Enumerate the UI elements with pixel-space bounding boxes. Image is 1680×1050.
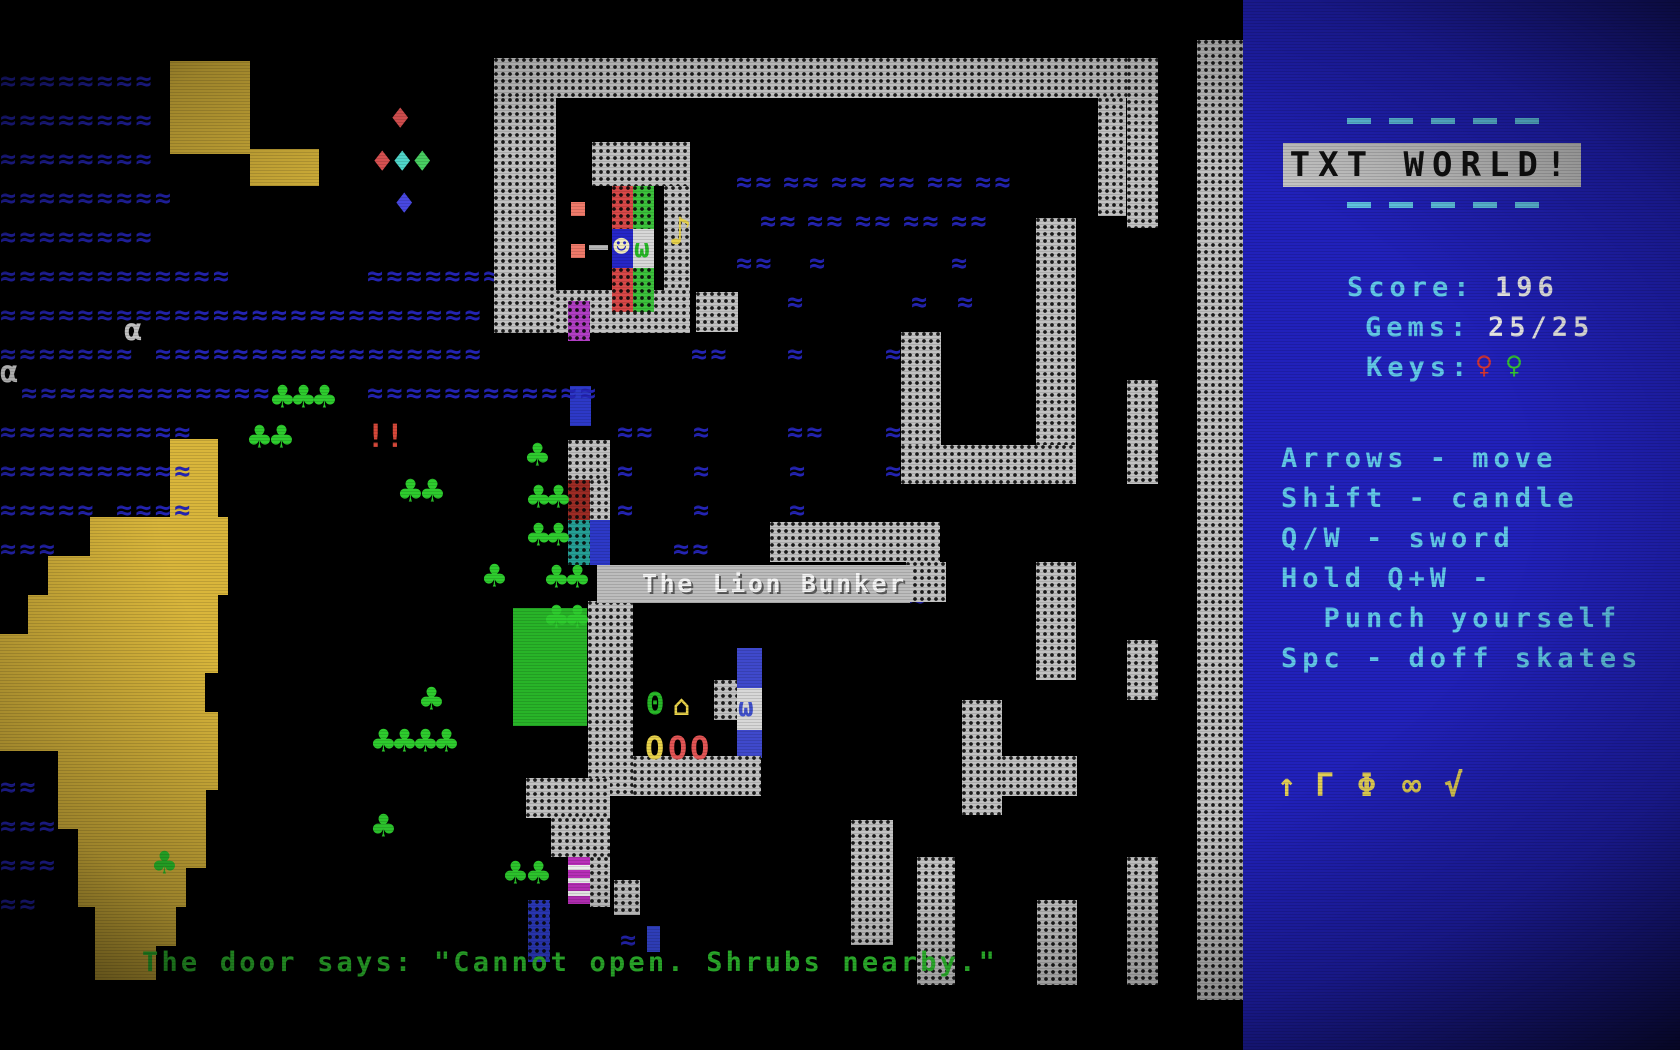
yellow-terrain xyxy=(58,790,206,829)
gem-cyan: ♦ xyxy=(392,145,412,179)
water-tiles: ≈≈≈≈≈≈≈≈≈≈≈≈≈≈≈≈≈ xyxy=(155,340,484,370)
water-tiles: ≈≈ xyxy=(927,168,966,198)
yellow-terrain xyxy=(0,634,218,673)
gem-red: ♦ xyxy=(372,145,392,179)
wall xyxy=(551,818,610,857)
gems-value: 25/25 xyxy=(1488,312,1594,344)
green-key-icon: ♀ xyxy=(1505,350,1523,382)
water-tiles: ≈≈ xyxy=(673,535,712,565)
bullet-dash xyxy=(589,245,608,250)
tree: ♣ xyxy=(153,844,176,882)
game-board[interactable]: The Lion Bunker The door says: "Cannot o… xyxy=(0,0,1243,1050)
tree: ♣ xyxy=(393,722,416,760)
wall xyxy=(1002,756,1077,796)
water-tiles: ≈≈ xyxy=(0,773,39,803)
tree: ♣ xyxy=(435,722,458,760)
water-tiles: ≈≈≈ xyxy=(0,812,58,842)
red-pellet xyxy=(571,202,585,216)
water-tiles: ≈≈≈≈≈≈≈≈ xyxy=(0,106,155,136)
water-tiles: ≈≈≈≈≈≈≈≈≈ xyxy=(0,184,174,214)
yellow-terrain xyxy=(48,556,228,595)
tree: ♣ xyxy=(399,472,422,510)
breakable-wall-red xyxy=(612,268,633,312)
boulder-red: O xyxy=(690,732,709,764)
water-tiles: ≈ xyxy=(911,288,930,318)
water-tiles: ≈≈ xyxy=(879,168,918,198)
wall xyxy=(588,601,633,796)
boulder-red: O xyxy=(668,732,687,764)
gamma-icon: Γ xyxy=(1315,768,1334,802)
board-name-text: The Lion Bunker xyxy=(642,571,907,597)
gem-blue: ♦ xyxy=(394,187,414,221)
wall xyxy=(906,562,946,602)
water-tiles: ≈≈ xyxy=(783,168,822,198)
tree: ♣ xyxy=(483,557,506,595)
wall xyxy=(1036,562,1076,680)
player: ☻ xyxy=(613,233,630,261)
world-title: TXT WORLD! xyxy=(1290,145,1575,185)
yellow-terrain xyxy=(78,829,206,868)
water-tiles: ≈ xyxy=(957,288,976,318)
red-key-icon: ♀ xyxy=(1475,350,1493,382)
wall xyxy=(1127,380,1158,484)
water-tiles: ≈≈≈≈≈≈≈≈≈≈≈≈≈ xyxy=(21,379,273,409)
world-title-banner: TXT WORLD! xyxy=(1283,143,1581,187)
water-tiles: ≈≈ xyxy=(855,207,894,237)
tree: ♣ xyxy=(566,598,589,636)
scroll-item xyxy=(568,857,590,904)
tree: ♣ xyxy=(421,472,444,510)
yellow-terrain xyxy=(0,673,205,712)
wall xyxy=(526,778,610,818)
breakable-wall-green xyxy=(633,186,654,229)
water-tiles: ≈≈ xyxy=(807,207,846,237)
energizer: ⌂ xyxy=(673,692,690,720)
tree: ♣ xyxy=(372,722,395,760)
wall xyxy=(590,480,610,520)
water-tiles: ≈≈≈≈ xyxy=(116,496,193,526)
water-tiles: ≈≈≈≈≈≈≈≈≈≈≈≈ xyxy=(0,262,232,292)
keys-label: Keys: xyxy=(1366,352,1472,384)
gems-label: Gems: xyxy=(1365,312,1471,344)
tree: ♣ xyxy=(527,854,550,892)
water-tiles: ≈ xyxy=(951,249,970,279)
water-tiles: ≈≈≈≈≈≈≈≈≈≈ xyxy=(0,457,194,487)
instruction-candle: Shift - candle xyxy=(1281,483,1579,515)
wall xyxy=(1098,98,1126,216)
score-label: Score: xyxy=(1347,272,1475,304)
tree: ♣ xyxy=(545,558,568,596)
gem-green: ♦ xyxy=(412,145,432,179)
green-creature: ω xyxy=(634,236,650,262)
wall xyxy=(770,522,940,562)
water-tiles: ≈ xyxy=(617,457,636,487)
tree: ♣ xyxy=(504,854,527,892)
water-tiles: ≈≈ xyxy=(903,207,942,237)
board-name-banner: The Lion Bunker xyxy=(597,565,910,603)
water-tiles: ≈ xyxy=(617,496,636,526)
blue-block xyxy=(590,520,610,565)
water-tiles: ≈≈ xyxy=(736,249,775,279)
water-tiles: ≈≈≈≈≈≈≈≈≈≈≈≈ xyxy=(367,379,599,409)
water-tiles: ≈≈≈≈≈≈≈≈ xyxy=(0,223,155,253)
yellow-terrain xyxy=(58,751,218,790)
exclamation-pair: !! xyxy=(366,420,405,452)
wall xyxy=(1127,857,1158,985)
phi-icon: Φ xyxy=(1357,768,1376,802)
water-tiles: ≈ xyxy=(693,496,712,526)
boulder-yellow: O xyxy=(645,732,664,764)
water-tiles: ≈≈≈≈≈≈≈≈≈≈ xyxy=(0,418,194,448)
wall xyxy=(696,292,738,332)
water-tiles: ≈ xyxy=(693,418,712,448)
music-note: ♪ xyxy=(668,212,692,252)
breakable-wall-green xyxy=(633,268,654,312)
wall xyxy=(1037,900,1077,985)
water-tiles: ≈≈ xyxy=(831,168,870,198)
gem-red: ♦ xyxy=(390,102,410,136)
wall xyxy=(494,58,1127,98)
red-pellet xyxy=(571,244,585,258)
yellow-terrain xyxy=(0,712,218,751)
water-tiles: ≈ xyxy=(787,340,806,370)
wall xyxy=(568,440,610,480)
water-tiles: ≈ xyxy=(787,288,806,318)
water-tiles: ≈≈ xyxy=(760,207,799,237)
water-tiles: ≈≈≈≈≈≈≈≈≈≈≈≈≈≈≈≈≈≈≈≈≈≈≈≈≈ xyxy=(0,301,484,331)
water-tiles: ≈ xyxy=(789,457,808,487)
tree: ♣ xyxy=(526,436,549,474)
message-line: The door says: "Cannot open. Shrubs near… xyxy=(142,948,998,978)
status-sidebar: TXT WORLD! Score: 196 Gems: 25/25 Keys: … xyxy=(1243,0,1680,1050)
water-tiles: ≈≈ xyxy=(0,890,39,920)
instruction-punch-2: Punch yourself xyxy=(1281,603,1621,635)
water-tiles: ≈≈ xyxy=(617,418,656,448)
yellow-terrain xyxy=(95,907,176,946)
tree: ♣ xyxy=(292,378,315,416)
tree: ♣ xyxy=(547,516,570,554)
water-tiles: ≈≈ xyxy=(951,207,990,237)
tree: ♣ xyxy=(414,722,437,760)
water-tiles: ≈≈≈ xyxy=(0,535,58,565)
tree: ♣ xyxy=(372,807,395,845)
water-tiles: ≈≈ xyxy=(787,418,826,448)
instruction-skates: Spc - doff skates xyxy=(1281,643,1642,675)
water-tiles: ≈≈≈ xyxy=(0,851,58,881)
score-value: 196 xyxy=(1495,272,1559,304)
theta-creature: Θ xyxy=(646,690,664,720)
divider-dashes xyxy=(1347,118,1539,124)
blue-creature: ω xyxy=(738,695,754,721)
instruction-punch-1: Hold Q+W - xyxy=(1281,563,1494,595)
radical-icon: √ xyxy=(1444,768,1463,802)
breakable-wall-red xyxy=(612,186,633,229)
breakable-wall-purple xyxy=(568,301,590,341)
water-tiles: ≈ xyxy=(809,249,828,279)
water-tiles: ≈≈≈≈≈ xyxy=(0,496,97,526)
wall xyxy=(614,880,640,915)
alpha-creature: α xyxy=(0,358,18,388)
water-tiles: ≈ xyxy=(693,457,712,487)
wall xyxy=(851,820,893,945)
alpha-creature: α xyxy=(124,316,142,346)
wall xyxy=(590,857,610,907)
water-tiles: ≈≈≈≈≈≈≈≈ xyxy=(0,145,155,175)
yellow-terrain xyxy=(28,595,218,634)
tree: ♣ xyxy=(270,418,293,456)
infinity-icon: ∞ xyxy=(1402,768,1421,802)
water-tiles: ≈≈ xyxy=(691,340,730,370)
tree: ♣ xyxy=(566,558,589,596)
tree: ♣ xyxy=(248,418,271,456)
instruction-move: Arrows - move xyxy=(1281,443,1557,475)
wall xyxy=(962,700,1002,815)
water-tiles: ≈≈≈≈≈≈≈≈ xyxy=(0,67,155,97)
instruction-sword: Q/W - sword xyxy=(1281,523,1515,555)
wall xyxy=(714,680,737,720)
tree: ♣ xyxy=(271,378,294,416)
wall xyxy=(1197,40,1243,1000)
water-tiles: ≈≈≈≈≈≈≈ xyxy=(367,262,503,292)
game-screen: The Lion Bunker The door says: "Cannot o… xyxy=(0,0,1680,1050)
breakable-wall-maroon xyxy=(568,480,590,520)
tree: ♣ xyxy=(547,478,570,516)
tree: ♣ xyxy=(545,598,568,636)
yellow-terrain xyxy=(170,61,250,154)
tree: ♣ xyxy=(313,378,336,416)
wall xyxy=(592,142,690,186)
divider-dashes xyxy=(1347,202,1539,208)
yellow-terrain xyxy=(250,149,319,186)
wall xyxy=(1127,58,1158,228)
water-tiles: ≈≈≈≈≈≈≈ xyxy=(0,340,136,370)
wall xyxy=(901,445,1076,484)
water-tiles: ≈≈ xyxy=(736,168,775,198)
tree: ♣ xyxy=(420,680,443,718)
wall xyxy=(494,98,556,333)
wall xyxy=(1127,640,1158,700)
water-tiles: ≈≈ xyxy=(975,168,1014,198)
up-arrow-icon: ↑ xyxy=(1277,768,1296,802)
